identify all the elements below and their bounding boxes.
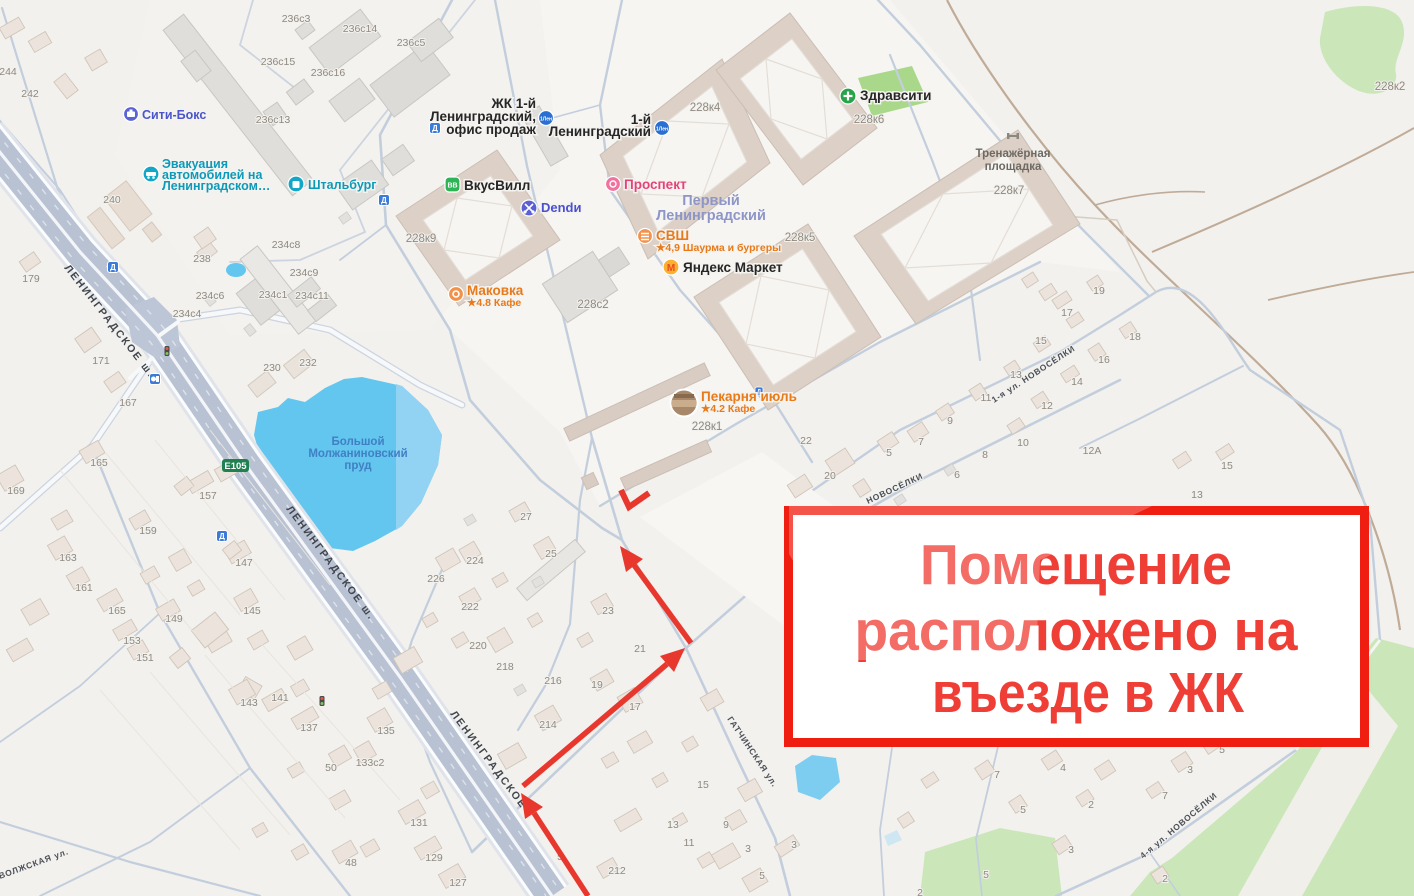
svg-text:214: 214 — [539, 719, 557, 731]
svg-text:127: 127 — [449, 877, 467, 889]
svg-text:7: 7 — [994, 769, 1000, 781]
svg-text:Д: Д — [381, 196, 387, 205]
svg-text:228к5: 228к5 — [785, 232, 816, 244]
svg-text:15: 15 — [697, 779, 709, 791]
svg-text:234с6: 234с6 — [196, 290, 225, 302]
svg-text:Е105: Е105 — [224, 461, 247, 472]
svg-text:244: 244 — [0, 66, 17, 78]
svg-text:2: 2 — [1088, 799, 1094, 811]
svg-text:240: 240 — [103, 194, 121, 206]
svg-text:236с13: 236с13 — [256, 114, 291, 126]
svg-text:въезде в ЖК: въезде в ЖК — [932, 661, 1244, 725]
svg-text:212: 212 — [608, 865, 626, 877]
svg-text:7: 7 — [1162, 790, 1168, 802]
svg-text:143: 143 — [240, 697, 258, 709]
svg-text:Ленинградский: Ленинградский — [656, 208, 766, 224]
svg-text:1Лен: 1Лен — [656, 127, 668, 133]
svg-text:★4,9 Шаурма и бургеры: ★4,9 Шаурма и бургеры — [656, 242, 781, 254]
svg-text:Тренажёрная: Тренажёрная — [976, 148, 1051, 160]
svg-text:7: 7 — [918, 436, 924, 448]
svg-text:М: М — [667, 263, 675, 274]
svg-text:20: 20 — [824, 470, 836, 482]
svg-text:220: 220 — [469, 640, 487, 652]
svg-text:145: 145 — [243, 605, 261, 617]
svg-text:19: 19 — [1093, 285, 1105, 297]
svg-text:157: 157 — [199, 490, 217, 502]
svg-text:Пекарня июль: Пекарня июль — [701, 389, 797, 404]
svg-text:5: 5 — [983, 869, 989, 881]
svg-text:2: 2 — [1162, 873, 1168, 885]
svg-text:19: 19 — [591, 679, 603, 691]
svg-text:234с9: 234с9 — [290, 267, 319, 279]
svg-text:149: 149 — [165, 613, 183, 625]
svg-text:23: 23 — [602, 605, 614, 617]
svg-text:242: 242 — [21, 88, 39, 100]
svg-text:3: 3 — [1068, 844, 1074, 856]
svg-text:228к9: 228к9 — [406, 233, 437, 245]
svg-text:151: 151 — [136, 652, 154, 664]
svg-text:13: 13 — [1010, 369, 1022, 381]
svg-text:135: 135 — [377, 725, 395, 737]
svg-text:226: 226 — [427, 573, 445, 585]
svg-text:10: 10 — [1017, 437, 1029, 449]
svg-text:14: 14 — [1071, 376, 1083, 388]
svg-text:238: 238 — [193, 253, 211, 265]
svg-text:224: 224 — [466, 555, 484, 567]
svg-text:6: 6 — [954, 469, 960, 481]
svg-text:СВШ: СВШ — [656, 228, 689, 243]
svg-text:5: 5 — [1020, 804, 1026, 816]
svg-text:234с11: 234с11 — [295, 290, 329, 302]
svg-text:1Лен: 1Лен — [540, 117, 552, 123]
svg-text:137: 137 — [300, 722, 318, 734]
svg-text:15: 15 — [1221, 460, 1233, 472]
svg-text:3: 3 — [791, 839, 797, 851]
svg-text:179: 179 — [22, 273, 40, 285]
svg-text:9: 9 — [947, 415, 953, 427]
svg-text:Д: Д — [432, 124, 438, 133]
svg-text:236с15: 236с15 — [261, 56, 296, 68]
svg-text:Ленинградском…: Ленинградском… — [162, 179, 270, 193]
svg-text:3: 3 — [1187, 764, 1193, 776]
svg-text:129: 129 — [425, 852, 443, 864]
svg-text:Яндекс Маркет: Яндекс Маркет — [683, 260, 783, 275]
svg-text:11: 11 — [981, 392, 992, 404]
svg-text:Штальбург: Штальбург — [308, 178, 376, 192]
svg-text:2: 2 — [917, 887, 923, 896]
svg-text:228к4: 228к4 — [690, 102, 721, 114]
svg-text:228к7: 228к7 — [994, 185, 1025, 197]
svg-text:165: 165 — [108, 605, 126, 617]
svg-text:236с16: 236с16 — [311, 67, 346, 79]
svg-text:13: 13 — [667, 819, 679, 831]
svg-text:11: 11 — [684, 837, 695, 849]
svg-text:153: 153 — [123, 635, 141, 647]
svg-text:228к2: 228к2 — [1375, 81, 1406, 93]
svg-text:ВкусВилл: ВкусВилл — [464, 178, 530, 193]
svg-text:12А: 12А — [1083, 445, 1102, 457]
svg-text:Проспект: Проспект — [624, 177, 687, 192]
svg-text:222: 222 — [461, 601, 479, 613]
svg-text:ВВ: ВВ — [447, 183, 457, 190]
svg-text:пруд: пруд — [344, 460, 372, 472]
svg-text:236с3: 236с3 — [282, 13, 311, 25]
svg-text:★4.2 Кафе: ★4.2 Кафе — [701, 403, 755, 415]
svg-text:171: 171 — [92, 355, 110, 367]
svg-text:Большой: Большой — [331, 436, 384, 448]
svg-text:13: 13 — [1191, 489, 1203, 501]
svg-text:147: 147 — [235, 557, 253, 569]
svg-text:236с5: 236с5 — [397, 37, 426, 49]
svg-text:Сити-Бокс: Сити-Бокс — [142, 108, 206, 122]
svg-text:Д: Д — [110, 263, 116, 272]
svg-text:131: 131 — [410, 817, 428, 829]
svg-text:234с1: 234с1 — [259, 289, 288, 301]
svg-text:230: 230 — [263, 362, 281, 374]
svg-text:163: 163 — [59, 552, 77, 564]
svg-text:159: 159 — [139, 525, 157, 537]
svg-text:228с2: 228с2 — [577, 299, 608, 311]
svg-text:15: 15 — [1035, 335, 1047, 347]
svg-text:133с2: 133с2 — [356, 757, 385, 769]
svg-text:218: 218 — [496, 661, 514, 673]
svg-text:5: 5 — [759, 870, 765, 882]
svg-text:17: 17 — [629, 701, 641, 713]
svg-text:21: 21 — [634, 643, 646, 655]
svg-text:9: 9 — [723, 819, 729, 831]
svg-text:165: 165 — [90, 457, 108, 469]
svg-text:Д: Д — [219, 532, 225, 541]
svg-text:Маковка: Маковка — [467, 283, 524, 298]
svg-text:161: 161 — [75, 582, 93, 594]
svg-text:Здравсити: Здравсити — [860, 88, 931, 103]
svg-text:234с8: 234с8 — [272, 239, 301, 251]
svg-text:4: 4 — [1060, 762, 1066, 774]
svg-text:232: 232 — [299, 357, 317, 369]
svg-text:5: 5 — [886, 447, 892, 459]
svg-text:167: 167 — [119, 397, 137, 409]
svg-text:Молжаниновский: Молжаниновский — [308, 448, 407, 460]
svg-text:Dendи: Dendи — [541, 200, 582, 215]
svg-text:площадка: площадка — [985, 161, 1042, 173]
svg-text:216: 216 — [544, 675, 562, 687]
svg-text:Ленинградский: Ленинградский — [549, 124, 651, 139]
svg-text:50: 50 — [325, 762, 337, 774]
svg-text:8: 8 — [982, 449, 988, 461]
svg-text:141: 141 — [271, 692, 289, 704]
svg-text:16: 16 — [1098, 354, 1110, 366]
svg-text:12: 12 — [1041, 400, 1053, 412]
svg-text:22: 22 — [800, 435, 812, 447]
svg-text:18: 18 — [1129, 331, 1141, 343]
svg-text:17: 17 — [1061, 307, 1073, 319]
svg-text:169: 169 — [7, 485, 25, 497]
svg-text:48: 48 — [345, 857, 357, 869]
svg-text:27: 27 — [520, 511, 532, 523]
svg-text:3: 3 — [745, 843, 751, 855]
svg-text:228к6: 228к6 — [854, 114, 885, 126]
svg-text:★4.8 Кафе: ★4.8 Кафе — [467, 297, 521, 309]
svg-text:234с4: 234с4 — [173, 308, 202, 320]
svg-text:Первый: Первый — [682, 193, 740, 209]
svg-text:228к1: 228к1 — [692, 421, 723, 433]
svg-text:236с14: 236с14 — [343, 23, 378, 35]
svg-text:офис продаж: офис продаж — [446, 122, 536, 137]
svg-text:25: 25 — [545, 548, 557, 560]
